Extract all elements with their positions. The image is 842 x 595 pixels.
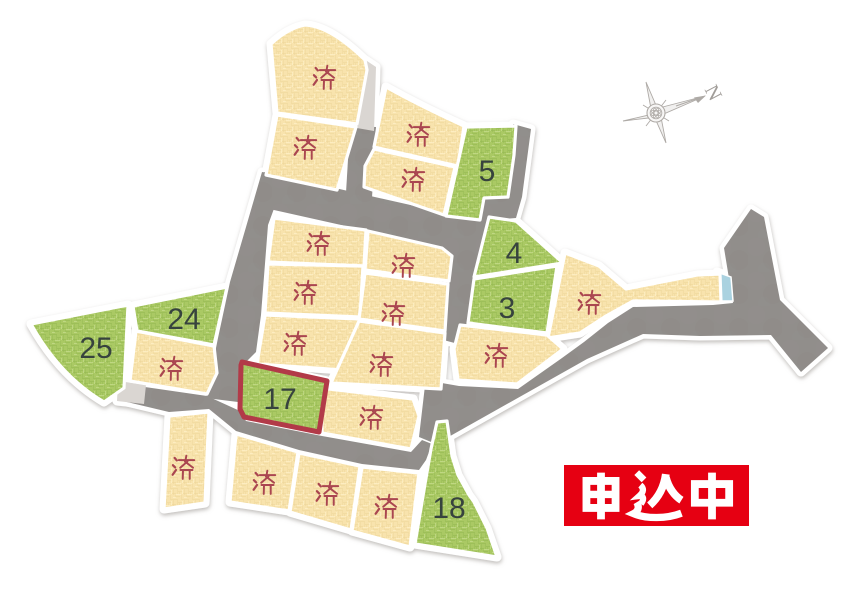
svg-text:24: 24 xyxy=(167,303,200,336)
svg-text:18: 18 xyxy=(432,492,465,525)
svg-text:3: 3 xyxy=(499,292,516,325)
svg-text:4: 4 xyxy=(506,237,523,270)
svg-text:25: 25 xyxy=(79,332,112,365)
svg-text:17: 17 xyxy=(263,383,296,416)
svg-text:N: N xyxy=(700,81,726,104)
svg-text:5: 5 xyxy=(479,155,496,188)
